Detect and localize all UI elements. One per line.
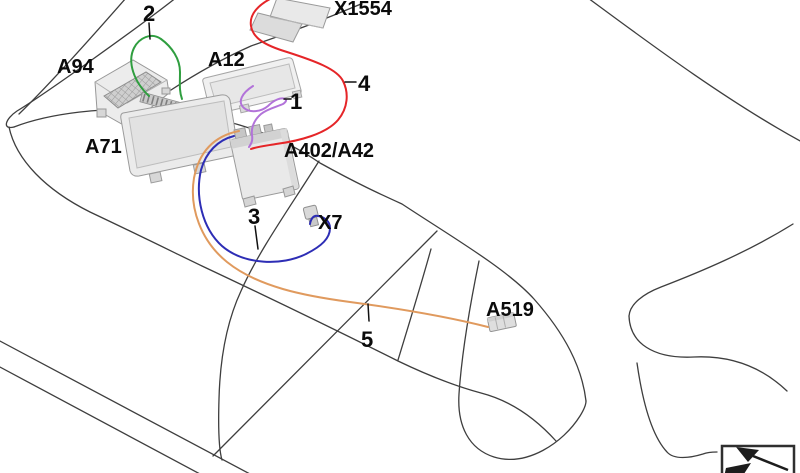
- rear-deck-upper-curve: [629, 224, 793, 316]
- label-x7: X7: [318, 212, 342, 234]
- label-callout-2: 2: [143, 1, 155, 26]
- label-a12: A12: [208, 49, 245, 71]
- roofline: [588, 0, 800, 142]
- rear-quarter-curve: [459, 261, 586, 459]
- direction-of-travel-icon: [722, 446, 794, 473]
- leader-3: [255, 226, 258, 249]
- label-a71: A71: [85, 136, 122, 158]
- label-callout-3: 3: [248, 204, 260, 229]
- diagram-canvas: 2 X1554 A94 A12 4 1 A402/A42 A71 3 X7 5 …: [0, 0, 800, 473]
- label-callout-1: 1: [290, 89, 302, 114]
- door-front-edge-line: [219, 161, 319, 460]
- rocker-line-upper: [0, 340, 250, 473]
- rear-deck-lower-curve: [629, 316, 787, 391]
- rear-fender-line: [637, 363, 717, 458]
- label-a402-a42: A402/A42: [284, 140, 374, 162]
- label-callout-5: 5: [361, 327, 373, 352]
- leader-5: [368, 304, 369, 321]
- label-a519: A519: [486, 299, 534, 321]
- label-callout-4: 4: [358, 71, 371, 96]
- component-a402: [228, 119, 299, 207]
- component-x1554: [250, 0, 330, 42]
- rocker-line-lower: [0, 366, 200, 473]
- label-a94: A94: [57, 56, 95, 78]
- label-x1554: X1554: [334, 0, 393, 20]
